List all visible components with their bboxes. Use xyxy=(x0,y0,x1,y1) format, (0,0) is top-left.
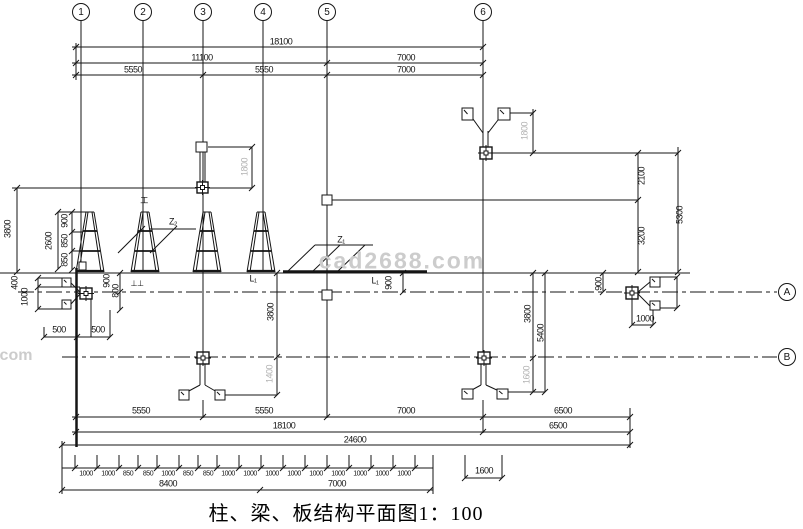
grid-bubble-A: A xyxy=(778,283,796,301)
dim-label: 1000 xyxy=(21,288,30,306)
dim-label: 1000 xyxy=(79,471,93,478)
dim-label: 500 xyxy=(91,326,105,335)
dim-label: 2100 xyxy=(638,167,647,185)
dim-label: 1000 xyxy=(636,315,654,324)
annotation-label: 工 xyxy=(140,197,148,205)
dim-label: 3200 xyxy=(638,227,647,245)
dim-label: 6500 xyxy=(554,407,572,416)
watermark-text: cad2688.com xyxy=(319,248,485,275)
dim-label: 18100 xyxy=(273,422,296,431)
dim-label: 850 xyxy=(61,234,70,248)
dim-label: 1000 xyxy=(161,471,175,478)
dim-label: 850 xyxy=(123,471,133,478)
dim-label: 7000 xyxy=(397,66,415,75)
dim-label: 400 xyxy=(11,276,20,290)
dim-label: 3800 xyxy=(267,303,276,321)
drawing-title: 柱、梁、板结构平面图1：100 xyxy=(209,497,484,526)
grid-bubble-1: 1 xyxy=(72,3,90,21)
dim-label: 1600 xyxy=(475,467,493,476)
dim-label: 11100 xyxy=(191,54,212,63)
annotation-label: ⊥⊥ xyxy=(131,280,144,288)
annotation-label: L₁ xyxy=(371,277,378,286)
dim-label: 5550 xyxy=(255,407,273,416)
dim-label: 800 xyxy=(112,284,121,298)
dim-label: 1000 xyxy=(331,471,345,478)
dim-label: 1000 xyxy=(287,471,301,478)
dim-label: 5550 xyxy=(255,66,273,75)
dim-label: 7000 xyxy=(328,480,346,489)
grid-bubble-5: 5 xyxy=(318,3,336,21)
watermark-corner-text: com xyxy=(0,347,32,365)
dim-label: 850 xyxy=(183,471,193,478)
grid-bubble-3: 3 xyxy=(194,3,212,21)
dim-label: 6500 xyxy=(549,422,567,431)
dim-label: 850 xyxy=(203,471,213,478)
dim-label: 1000 xyxy=(101,471,115,478)
dim-label: 7000 xyxy=(397,407,415,416)
cad-drawing-canvas: 123456AB 1810011100700055505550700021003… xyxy=(0,0,803,529)
dim-label: 1000 xyxy=(243,471,257,478)
annotation-label: L₁ xyxy=(249,275,256,284)
dim-label: 1600 xyxy=(523,366,532,384)
dim-label: 900 xyxy=(595,277,604,291)
dim-label: 1000 xyxy=(265,471,279,478)
dim-label: 1800 xyxy=(521,122,530,140)
dim-label: 7000 xyxy=(397,54,415,63)
dim-label: 850 xyxy=(61,253,70,267)
dim-label: 850 xyxy=(143,471,153,478)
dim-label: 900 xyxy=(385,276,394,290)
dim-label: 900 xyxy=(61,214,70,228)
dim-label: 5550 xyxy=(124,66,142,75)
dim-label: 24600 xyxy=(344,436,367,445)
dim-label: 1000 xyxy=(353,471,367,478)
dim-label: 1000 xyxy=(221,471,235,478)
grid-bubble-6: 6 xyxy=(474,3,492,21)
dim-label: 5300 xyxy=(676,206,685,224)
dim-label: 3800 xyxy=(524,305,533,323)
dim-label: 8400 xyxy=(159,480,177,489)
dim-label: 500 xyxy=(52,326,66,335)
annotation-label: Z₂ xyxy=(169,218,177,227)
grid-bubble-4: 4 xyxy=(254,3,272,21)
dim-label: 3800 xyxy=(4,220,13,238)
grid-bubble-2: 2 xyxy=(134,3,152,21)
annotation-label: Z₁ xyxy=(337,236,345,245)
grid-bubble-B: B xyxy=(778,348,796,366)
dim-label: 18100 xyxy=(270,38,293,47)
dim-label: 1000 xyxy=(309,471,323,478)
dim-label: 5550 xyxy=(132,407,150,416)
dim-label: 1000 xyxy=(375,471,389,478)
dim-label: 2600 xyxy=(45,232,54,250)
dim-label: 1400 xyxy=(266,365,275,383)
dim-label: 1800 xyxy=(241,158,250,176)
dim-label: 5400 xyxy=(537,324,546,342)
dim-label: 1000 xyxy=(397,471,411,478)
